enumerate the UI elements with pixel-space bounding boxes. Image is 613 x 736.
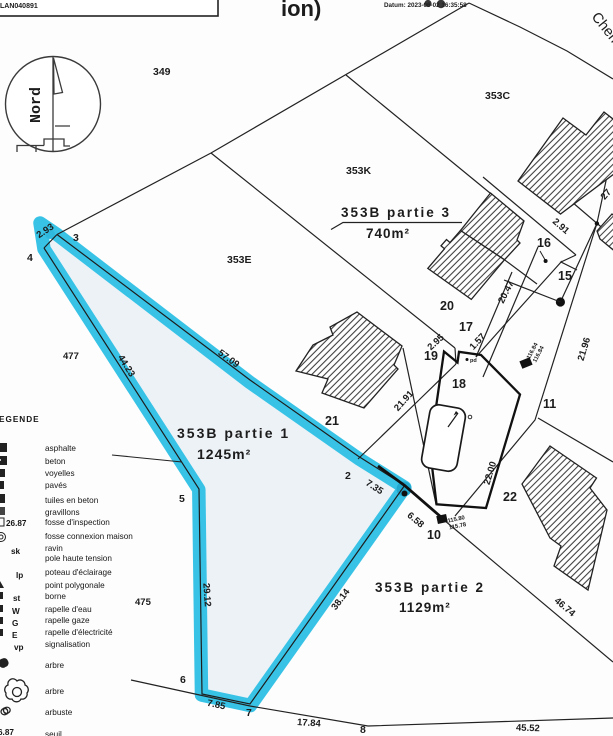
svg-text:E: E: [12, 631, 18, 640]
svg-text:353B partie 1: 353B partie 1: [177, 425, 290, 441]
svg-text:pavés: pavés: [45, 481, 67, 490]
svg-text:5: 5: [179, 493, 185, 505]
svg-text:8: 8: [360, 724, 366, 736]
svg-text:LEGENDE: LEGENDE: [0, 415, 40, 424]
svg-text:477: 477: [63, 351, 79, 362]
svg-text:ravin: ravin: [45, 544, 63, 553]
svg-text:15: 15: [558, 269, 572, 283]
svg-text:G: G: [12, 619, 18, 628]
svg-text:1245m²: 1245m²: [197, 446, 251, 462]
svg-text:21: 21: [325, 414, 339, 428]
svg-text:seuil: seuil: [45, 730, 62, 736]
svg-text:20: 20: [440, 299, 454, 313]
svg-text:4: 4: [27, 252, 33, 264]
svg-text:lp: lp: [16, 571, 23, 580]
svg-text:W: W: [12, 607, 20, 616]
svg-text:6: 6: [180, 674, 186, 686]
svg-text:fosse connexion maison: fosse connexion maison: [45, 532, 133, 541]
svg-text:rapelle d'électricité: rapelle d'électricité: [45, 628, 113, 637]
svg-text:beton: beton: [45, 457, 66, 466]
svg-text:ion): ion): [281, 0, 321, 21]
svg-text:353B partie 2: 353B partie 2: [375, 580, 485, 595]
svg-text:fosse d'inspection: fosse d'inspection: [45, 518, 110, 527]
svg-text:10: 10: [427, 528, 441, 542]
svg-text:pole haute tension: pole haute tension: [45, 554, 112, 563]
svg-text:29.12: 29.12: [200, 583, 213, 607]
svg-text:7: 7: [246, 707, 252, 719]
svg-text:voyelles: voyelles: [45, 469, 75, 478]
svg-text:Nord: Nord: [28, 87, 45, 123]
svg-text:arbre: arbre: [45, 661, 65, 670]
svg-text:tuiles en beton: tuiles en beton: [45, 496, 99, 505]
svg-text:22: 22: [503, 490, 517, 504]
svg-text:arbre: arbre: [45, 687, 65, 696]
svg-text:LAN040891: LAN040891: [0, 3, 38, 10]
svg-text:353C: 353C: [485, 90, 511, 102]
svg-text:740m²: 740m²: [366, 226, 410, 241]
svg-text:st: st: [13, 594, 21, 603]
svg-text:rapelle gaze: rapelle gaze: [45, 616, 90, 625]
svg-text:2: 2: [345, 470, 351, 482]
svg-text:1129m²: 1129m²: [399, 600, 451, 615]
svg-text:gravillons: gravillons: [45, 508, 80, 517]
svg-text:borne: borne: [45, 592, 66, 601]
svg-text:45.52: 45.52: [516, 723, 540, 735]
svg-text:rapelle d'eau: rapelle d'eau: [45, 605, 92, 614]
svg-text:signalisation: signalisation: [45, 640, 91, 649]
svg-text:11: 11: [543, 397, 556, 411]
svg-text:26.87: 26.87: [6, 519, 27, 528]
svg-text:17.84: 17.84: [297, 717, 322, 730]
svg-text:arbuste: arbuste: [45, 708, 73, 717]
svg-text:asphalte: asphalte: [45, 444, 76, 453]
svg-text:point polygonale: point polygonale: [45, 581, 105, 590]
svg-text:vp: vp: [14, 643, 24, 652]
svg-text:349: 349: [153, 66, 171, 78]
svg-text:17: 17: [459, 320, 473, 334]
svg-text:pd: pd: [470, 358, 477, 364]
svg-text:18: 18: [452, 377, 466, 391]
svg-text:353E: 353E: [227, 254, 252, 266]
svg-text:poteau d'éclairage: poteau d'éclairage: [45, 568, 112, 577]
svg-text:6.87: 6.87: [0, 728, 14, 736]
svg-text:475: 475: [135, 597, 152, 608]
svg-text:353K: 353K: [346, 165, 372, 177]
svg-text:sk: sk: [11, 547, 21, 556]
svg-text:3: 3: [73, 232, 79, 244]
svg-text:16: 16: [537, 236, 551, 250]
svg-text:353B partie 3: 353B partie 3: [341, 205, 451, 220]
